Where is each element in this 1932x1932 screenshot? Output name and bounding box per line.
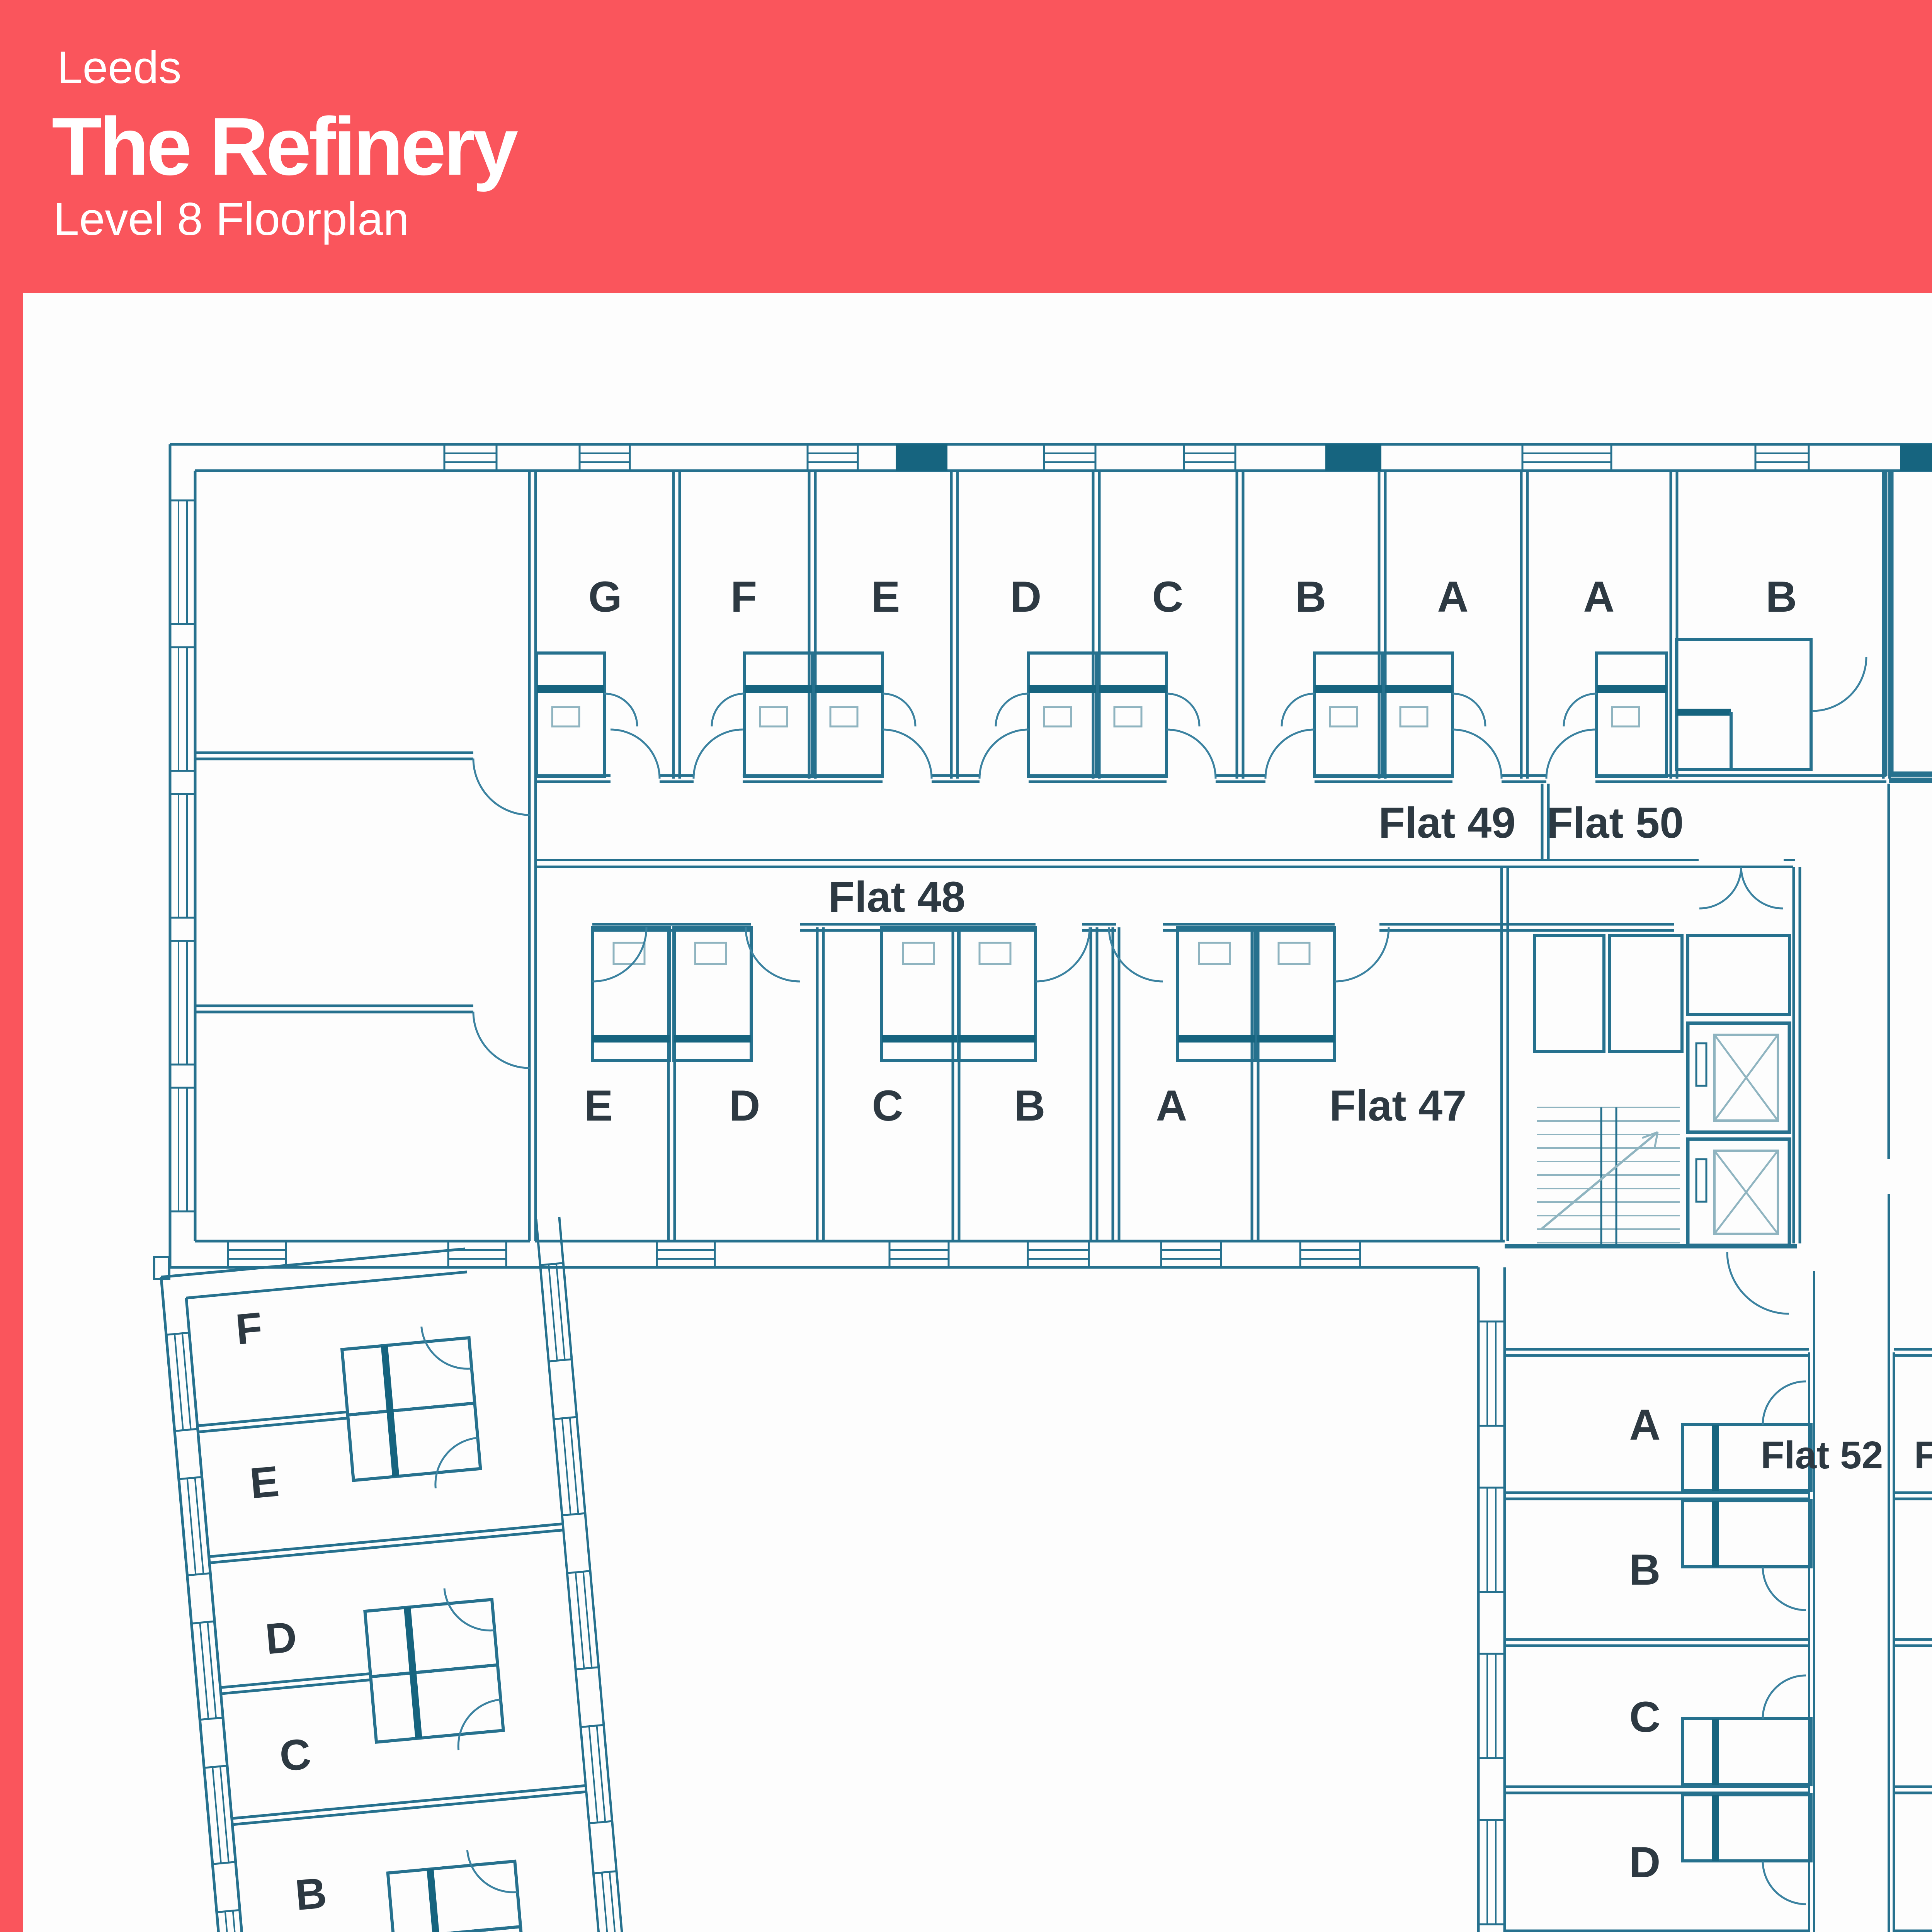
svg-text:E: E — [584, 1082, 613, 1130]
svg-text:F: F — [234, 1303, 264, 1354]
svg-text:A: A — [1629, 1401, 1661, 1449]
svg-text:Flat 48: Flat 48 — [828, 873, 966, 921]
svg-text:A: A — [1156, 1082, 1187, 1130]
svg-text:E: E — [248, 1457, 281, 1507]
svg-text:D: D — [1010, 573, 1042, 621]
svg-text:Flat 49: Flat 49 — [1379, 799, 1516, 847]
svg-text:F: F — [731, 573, 757, 621]
svg-text:B: B — [1766, 573, 1797, 621]
svg-text:E: E — [871, 573, 900, 621]
svg-text:B: B — [1014, 1082, 1046, 1130]
svg-text:B: B — [293, 1869, 328, 1920]
svg-text:D: D — [264, 1612, 299, 1663]
svg-text:Level 8 Floorplan: Level 8 Floorplan — [53, 193, 409, 245]
svg-text:Flat 52: Flat 52 — [1761, 1434, 1883, 1477]
svg-text:Flat 47: Flat 47 — [1330, 1082, 1467, 1130]
svg-text:Flat 51: Flat 51 — [1914, 1434, 1932, 1477]
svg-text:G: G — [588, 573, 622, 621]
svg-text:The Refinery: The Refinery — [52, 100, 518, 192]
svg-text:Leeds: Leeds — [57, 42, 182, 93]
svg-text:D: D — [729, 1082, 760, 1130]
svg-text:B: B — [1295, 573, 1327, 621]
svg-text:A: A — [1437, 573, 1469, 621]
svg-text:C: C — [1152, 573, 1184, 621]
svg-text:C: C — [277, 1730, 313, 1781]
svg-text:D: D — [1629, 1838, 1661, 1886]
svg-text:Flat 50: Flat 50 — [1547, 799, 1684, 847]
svg-text:C: C — [872, 1082, 903, 1130]
svg-text:A: A — [1583, 573, 1615, 621]
svg-text:C: C — [1629, 1693, 1661, 1741]
svg-text:B: B — [1629, 1546, 1661, 1594]
